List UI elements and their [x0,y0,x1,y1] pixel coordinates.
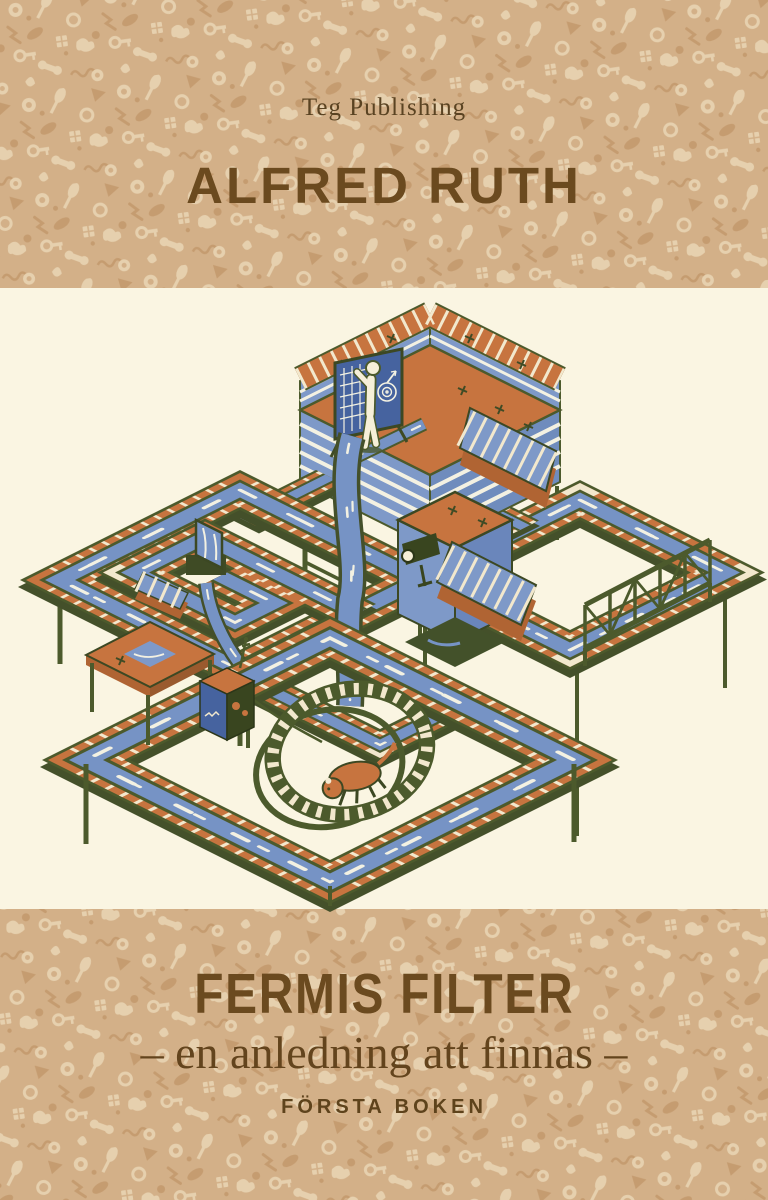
publisher-name: Teg Publishing [0,94,768,122]
series-label: FÖRSTA BOKEN [0,1096,768,1119]
book-title-text: FERMIS FILTER [194,961,574,1027]
book-title: FERMIS FILTER [0,961,768,1027]
author-name: ALFRED RUTH [0,156,768,215]
book-subtitle: – en anledning att finnas – [0,1026,768,1079]
